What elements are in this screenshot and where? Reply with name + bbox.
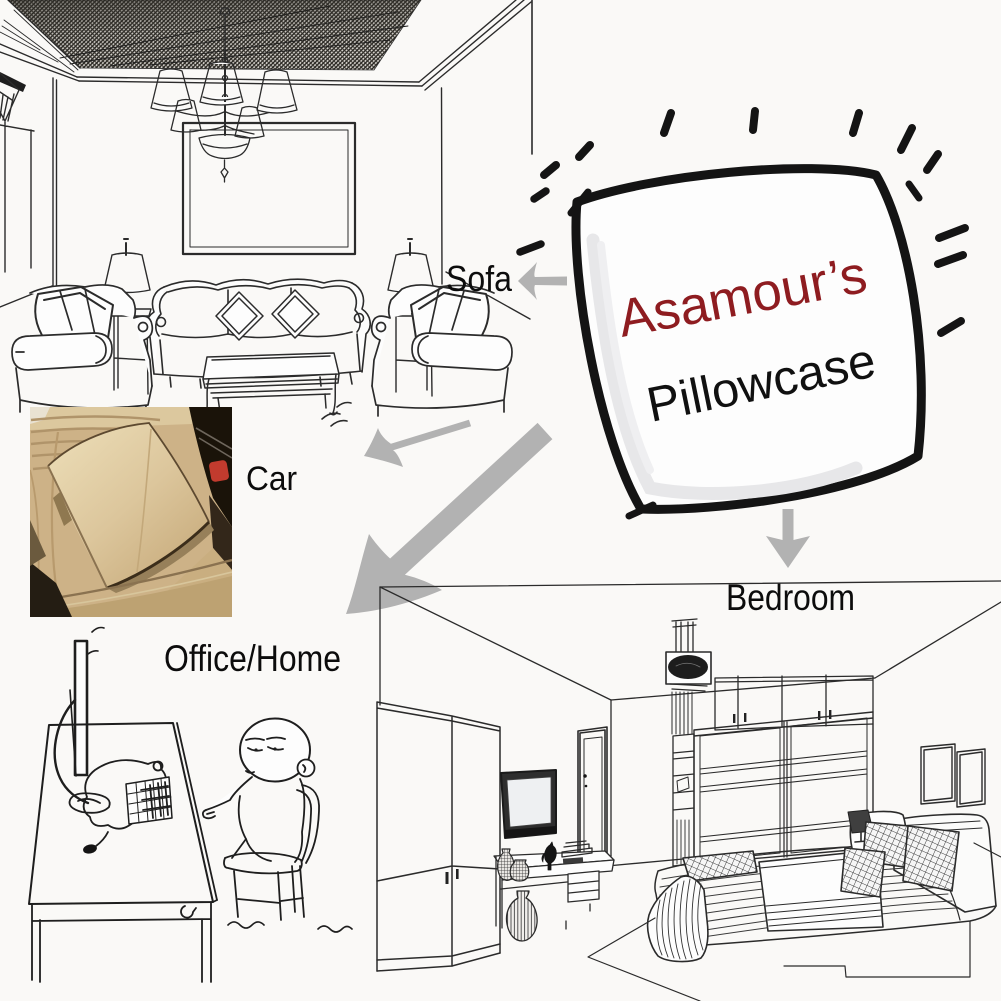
svg-text:Sofa: Sofa (446, 258, 513, 299)
svg-text:Car: Car (246, 460, 297, 498)
svg-text:Office/Home: Office/Home (164, 638, 341, 679)
